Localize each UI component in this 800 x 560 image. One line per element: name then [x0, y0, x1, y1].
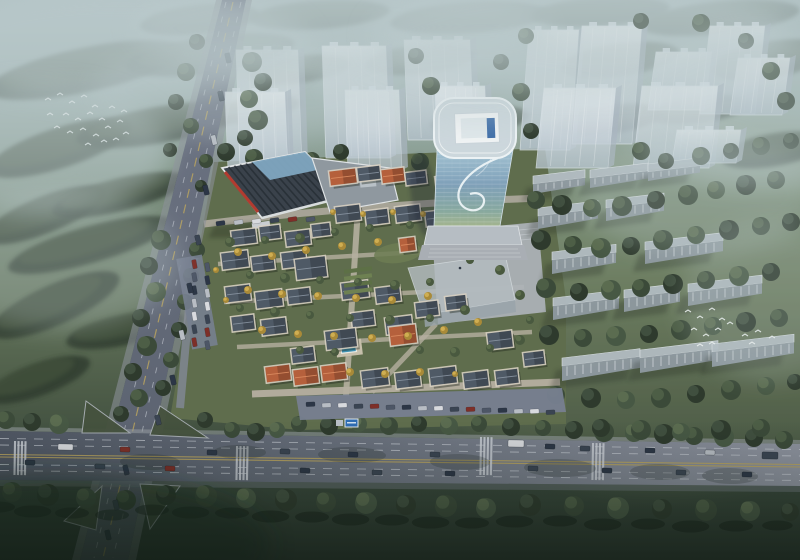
tree-highlight — [156, 380, 166, 390]
village-tree-yellow-highlight — [353, 295, 357, 299]
house-slate — [494, 367, 522, 389]
podium-plaza-strip — [418, 245, 528, 260]
village-tree-yellow-highlight — [295, 331, 299, 335]
rendering-stage — [0, 0, 800, 560]
house-terracotta — [387, 323, 420, 349]
village-tree-yellow-highlight — [223, 297, 226, 300]
house-slate — [293, 254, 330, 283]
village-tree-green-highlight — [487, 345, 491, 349]
village-tree-yellow-highlight — [315, 293, 319, 297]
village-tree-green-highlight — [226, 238, 232, 244]
village-tree-yellow-highlight — [475, 319, 479, 323]
tree-highlight — [114, 406, 124, 416]
village-tree-green-highlight — [427, 279, 431, 283]
parked-car — [482, 408, 491, 413]
tree-highlight — [602, 281, 614, 293]
village-tree-green-highlight — [332, 229, 336, 233]
parked-car — [450, 407, 459, 412]
village-tree-green-highlight — [516, 291, 522, 297]
house-slate — [334, 203, 364, 226]
village-tree-yellow-highlight — [382, 371, 386, 375]
tree-highlight — [196, 180, 203, 187]
village-tree-green-highlight — [237, 305, 241, 309]
tree-highlight — [592, 239, 604, 251]
tree-highlight — [537, 279, 549, 291]
village-tree-yellow-highlight — [339, 243, 343, 247]
tree-highlight — [565, 236, 576, 247]
parked-car — [288, 216, 298, 222]
village-tree-green-highlight — [516, 336, 522, 342]
parked-car — [338, 403, 347, 408]
village-tree-green-highlight — [417, 347, 421, 351]
tree-highlight — [664, 275, 676, 287]
village-tree-green-highlight — [271, 308, 277, 314]
parked-car — [546, 410, 555, 415]
village-tree-yellow-highlight — [417, 369, 421, 373]
village-tree-yellow-highlight — [331, 333, 335, 337]
village-tree-yellow-highlight — [425, 293, 429, 297]
bottom-vignette — [0, 420, 800, 560]
house-slate — [230, 313, 258, 335]
village-tree-yellow-highlight — [405, 333, 409, 337]
tree-highlight — [138, 337, 150, 349]
village-tree-green-highlight — [281, 274, 287, 280]
house-slate — [522, 349, 548, 370]
parked-car — [322, 403, 331, 408]
village-tree-yellow-highlight — [330, 209, 333, 212]
house-terracotta — [398, 235, 419, 255]
house-terracotta — [328, 167, 360, 190]
village-tree-yellow-highlight — [452, 371, 455, 374]
parked-car — [418, 406, 427, 411]
village-tree-green-highlight — [332, 349, 336, 353]
parked-car — [370, 404, 379, 409]
tree-highlight — [607, 327, 619, 339]
village-tree-green-highlight — [407, 222, 411, 226]
village-tree-yellow-highlight — [259, 327, 263, 331]
village-tree-yellow-highlight — [369, 335, 373, 339]
tree-highlight — [672, 321, 684, 333]
village-tree-green-highlight — [307, 312, 311, 316]
village-tree-green-highlight — [247, 272, 251, 276]
village-tree-yellow-highlight — [390, 209, 393, 212]
village-tree-green-highlight — [527, 317, 531, 321]
tree-highlight — [218, 143, 229, 154]
village-tree-yellow-highlight — [279, 291, 283, 295]
tree-highlight — [652, 389, 664, 401]
village-tree-yellow-highlight — [347, 369, 351, 373]
tree-highlight — [532, 231, 544, 243]
tree-highlight — [618, 391, 629, 402]
parked-car — [216, 220, 226, 226]
village-tree-green-highlight — [391, 281, 397, 287]
tree-highlight — [540, 326, 552, 338]
village-tree-green-highlight — [297, 347, 301, 351]
village-tree-green-highlight — [386, 316, 392, 322]
village-tree-green-highlight — [347, 315, 351, 319]
parked-car — [466, 407, 475, 412]
house-slate — [290, 345, 318, 367]
house-slate — [359, 367, 391, 391]
tree-highlight — [334, 144, 344, 154]
parked-car — [434, 406, 443, 411]
tree-highlight — [688, 385, 699, 396]
village-tree-yellow-highlight — [235, 249, 239, 253]
tree-highlight — [528, 191, 539, 202]
house-slate — [310, 221, 334, 241]
village-tree-yellow-highlight — [375, 239, 379, 243]
house-slate — [356, 164, 384, 185]
tree-highlight — [575, 329, 586, 340]
village-tree-yellow-highlight — [213, 267, 216, 270]
parked-car — [514, 409, 523, 414]
pedestrian — [459, 267, 462, 270]
parked-car — [386, 405, 395, 410]
village-tree-green-highlight — [496, 266, 502, 272]
tree-highlight — [641, 325, 652, 336]
house-slate — [230, 227, 260, 249]
tree-highlight — [200, 154, 208, 162]
parked-car — [252, 218, 262, 224]
village-tree-green-highlight — [461, 306, 467, 312]
village-tree-yellow-highlight — [245, 287, 249, 291]
aerial-rendering — [0, 0, 800, 560]
tree-highlight — [125, 363, 136, 374]
village-tree-green-highlight — [317, 277, 321, 281]
parked-car — [498, 408, 507, 413]
tree-highlight — [722, 381, 734, 393]
house-slate — [286, 286, 314, 308]
tree-highlight — [246, 149, 257, 160]
house-slate — [462, 369, 492, 392]
house-slate — [323, 326, 360, 353]
village-tree-yellow-highlight — [389, 297, 393, 301]
village-tree-green-highlight — [427, 315, 431, 319]
parked-car — [306, 216, 316, 222]
tree-highlight — [524, 123, 534, 133]
tree-highlight — [633, 279, 644, 290]
tree-highlight — [571, 283, 582, 294]
parked-car — [402, 405, 411, 410]
village-tree-yellow-highlight — [269, 253, 273, 257]
tower-podium — [424, 226, 522, 245]
house-terracotta — [292, 366, 322, 389]
village-tree-green-highlight — [262, 237, 266, 241]
village-tree-green-highlight — [367, 225, 371, 229]
tree-highlight — [131, 389, 142, 400]
glass-tower-floor-lines — [434, 150, 513, 226]
tree-highlight — [553, 196, 565, 208]
village-tree-yellow-highlight — [441, 327, 445, 331]
parked-car — [354, 404, 363, 409]
village-tree-green-highlight — [355, 279, 359, 283]
house-terracotta — [264, 363, 294, 386]
tree-highlight — [582, 389, 594, 401]
parked-car — [234, 219, 244, 225]
parked-car — [530, 409, 539, 414]
village-tree-green-highlight — [296, 234, 302, 240]
village-tree-green-highlight — [451, 348, 457, 354]
parked-car — [306, 402, 315, 407]
parked-car — [270, 217, 280, 223]
village-tree-yellow-highlight — [360, 211, 363, 214]
house-terracotta — [320, 362, 350, 385]
tree-highlight — [164, 352, 174, 362]
village-tree-yellow-highlight — [303, 247, 307, 251]
fog-patch — [320, 35, 640, 125]
house-terracotta — [380, 166, 408, 187]
